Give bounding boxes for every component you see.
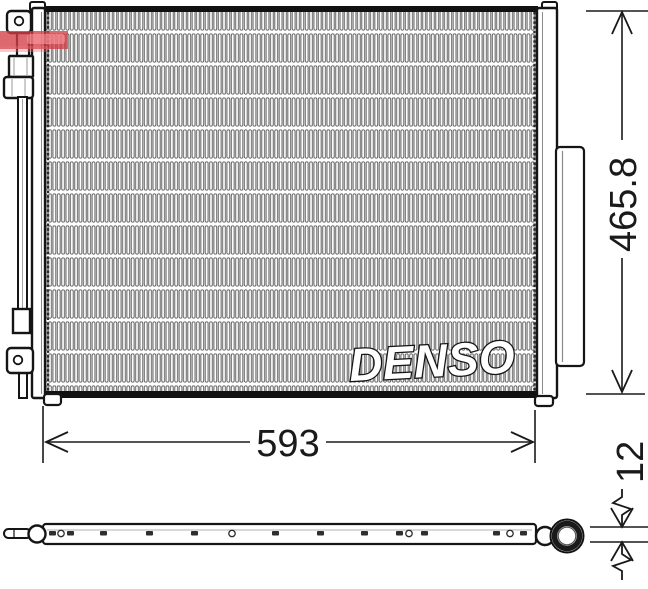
left-fittings	[4, 11, 33, 398]
seller-watermark-fade	[0, 46, 48, 52]
core-top-bar	[44, 6, 538, 12]
right-tank	[535, 2, 584, 406]
width-dimension: 593	[43, 406, 535, 465]
height-dimension: 465.8	[586, 11, 648, 394]
thickness-leader-top-zigzag	[613, 489, 631, 527]
side-view-inlet-pin	[4, 529, 31, 538]
bracket-top-hole	[15, 17, 24, 26]
left-bottom-tab	[44, 394, 61, 405]
pipe-lower-stub	[19, 372, 27, 398]
side-mount-plate	[556, 147, 584, 366]
core-bottom-bar	[44, 391, 538, 398]
fitting-block-lower	[4, 77, 33, 98]
side-view-left-ring	[29, 526, 46, 543]
side-view-bar	[43, 524, 536, 544]
seller-watermark	[0, 31, 68, 52]
right-bottom-tab	[535, 396, 553, 406]
drier-end-ring	[551, 520, 584, 553]
width-dimension-label: 593	[256, 423, 319, 465]
denso-brand-watermark: DENSO	[348, 330, 517, 391]
front-view: DENSO	[0, 2, 584, 406]
right-tank-body	[537, 8, 557, 398]
condenser-diagram: DENSO 593 465.8	[0, 0, 648, 589]
fitting-block-upper	[9, 56, 33, 77]
seller-watermark-glyphs	[27, 34, 65, 44]
bottom-view	[4, 520, 584, 553]
thickness-leader-bottom-zigzag	[613, 542, 631, 580]
pipe-clamp-block	[13, 309, 30, 333]
height-dimension-label: 465.8	[603, 157, 645, 252]
bracket-bottom-hole	[14, 356, 23, 365]
technical-drawing-canvas: DENSO 593 465.8	[0, 0, 648, 589]
thickness-dimension: 12	[590, 441, 648, 580]
thickness-dimension-label: 12	[610, 441, 648, 483]
